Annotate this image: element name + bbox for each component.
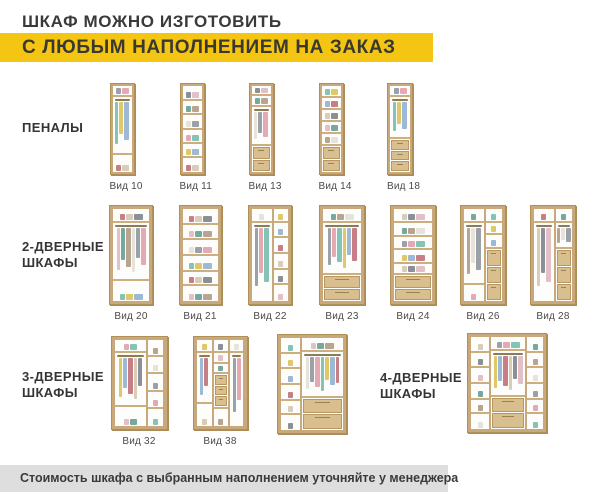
- wardrobe-illustration: [390, 205, 436, 305]
- drawer: [492, 398, 524, 413]
- drawer: [303, 414, 342, 429]
- drawer: [487, 267, 501, 283]
- group-label-line: ШКАФЫ: [22, 255, 104, 271]
- wardrobe-вид-28: Вид 28: [530, 205, 576, 322]
- catalog-page: ШКАФ МОЖНО ИЗГОТОВИТЬ С ЛЮБЫМ НАПОЛНЕНИЕ…: [0, 0, 600, 500]
- group-label-3-door: 3-ДВЕРНЫЕ ШКАФЫ: [22, 369, 104, 401]
- group-label-line: ШКАФЫ: [22, 385, 104, 401]
- promo-banner: С ЛЮБЫМ НАПОЛНЕНИЕМ НА ЗАКАЗ: [0, 33, 433, 62]
- wardrobe-illustration: [180, 83, 205, 175]
- wardrobe-illustration: [467, 333, 547, 433]
- wardrobe-illustration: [179, 205, 222, 305]
- wardrobe-вид-14: Вид 14: [319, 83, 344, 192]
- drawer: [253, 160, 270, 171]
- drawer: [253, 147, 270, 158]
- view-label: Вид 32: [111, 436, 168, 447]
- group-label-line: ШКАФЫ: [380, 386, 462, 402]
- wardrobe-вид-13: Вид 13: [249, 83, 274, 192]
- view-label: Вид 28: [530, 311, 576, 322]
- drawer: [487, 250, 501, 266]
- drawer: [324, 276, 360, 287]
- group-label-line: 2-ДВЕРНЫЕ: [22, 239, 104, 255]
- drawer: [324, 289, 360, 300]
- view-label: Вид 23: [319, 311, 365, 322]
- wardrobe-illustration: [530, 205, 576, 305]
- group-label-line: 3-ДВЕРНЫЕ: [22, 369, 104, 385]
- wardrobe-illustration: [387, 83, 413, 175]
- view-label: Вид 21: [179, 311, 222, 322]
- view-label: Вид 38: [193, 436, 248, 447]
- wardrobe-вид-10: Вид 10: [110, 83, 135, 192]
- view-label: Вид 22: [248, 311, 292, 322]
- drawer: [215, 386, 227, 395]
- view-label: Вид 10: [110, 181, 135, 192]
- group-label-pencil-cases: ПЕНАЛЫ: [22, 120, 83, 136]
- wardrobe-illustration: [193, 336, 248, 430]
- drawer: [487, 284, 501, 300]
- wardrobe-illustration: [249, 83, 274, 175]
- group-label-line: 4-ДВЕРНЫЕ: [380, 370, 462, 386]
- drawer: [215, 396, 227, 405]
- group-label-2-door: 2-ДВЕРНЫЕ ШКАФЫ: [22, 239, 104, 271]
- view-label: Вид 18: [387, 181, 413, 192]
- wardrobe-illustration: [460, 205, 506, 305]
- wardrobe-вид-23: Вид 23: [319, 205, 365, 322]
- wardrobe-вид-22: Вид 22: [248, 205, 292, 322]
- drawer: [557, 284, 571, 300]
- wardrobe-вид-38: Вид 38: [193, 336, 248, 447]
- drawer: [395, 276, 431, 287]
- wardrobe-вид-32: Вид 32: [111, 336, 168, 447]
- wardrobe-3-door-unlabeled: [277, 334, 347, 434]
- wardrobe-вид-21: Вид 21: [179, 205, 222, 322]
- view-label: Вид 20: [109, 311, 153, 322]
- view-label: Вид 13: [249, 181, 274, 192]
- group-label-line: ПЕНАЛЫ: [22, 120, 83, 136]
- view-label: Вид 11: [180, 181, 205, 192]
- drawer: [557, 250, 571, 266]
- drawer: [323, 147, 340, 158]
- drawer: [323, 160, 340, 171]
- view-label: Вид 24: [390, 311, 436, 322]
- wardrobe-illustration: [248, 205, 292, 305]
- wardrobe-вид-26: Вид 26: [460, 205, 506, 322]
- wardrobe-illustration: [110, 83, 135, 175]
- wardrobe-illustration: [319, 205, 365, 305]
- drawer: [391, 161, 409, 171]
- view-label: Вид 14: [319, 181, 344, 192]
- wardrobe-4-door-unlabeled: [467, 333, 547, 433]
- wardrobe-вид-24: Вид 24: [390, 205, 436, 322]
- drawer: [215, 375, 227, 384]
- wardrobe-вид-20: Вид 20: [109, 205, 153, 322]
- drawer: [492, 413, 524, 428]
- drawer: [391, 151, 409, 161]
- wardrobe-illustration: [111, 336, 168, 430]
- page-title: ШКАФ МОЖНО ИЗГОТОВИТЬ: [22, 12, 282, 32]
- wardrobe-illustration: [277, 334, 347, 434]
- drawer: [557, 267, 571, 283]
- wardrobe-illustration: [109, 205, 153, 305]
- group-label-4-door: 4-ДВЕРНЫЕ ШКАФЫ: [380, 370, 462, 402]
- view-label: Вид 26: [460, 311, 506, 322]
- wardrobe-вид-18: Вид 18: [387, 83, 413, 192]
- wardrobe-illustration: [319, 83, 344, 175]
- drawer: [391, 140, 409, 150]
- drawer: [395, 289, 431, 300]
- footer-note: Стоимость шкафа с выбранным наполнением …: [0, 465, 448, 492]
- drawer: [303, 399, 342, 414]
- wardrobe-вид-11: Вид 11: [180, 83, 205, 192]
